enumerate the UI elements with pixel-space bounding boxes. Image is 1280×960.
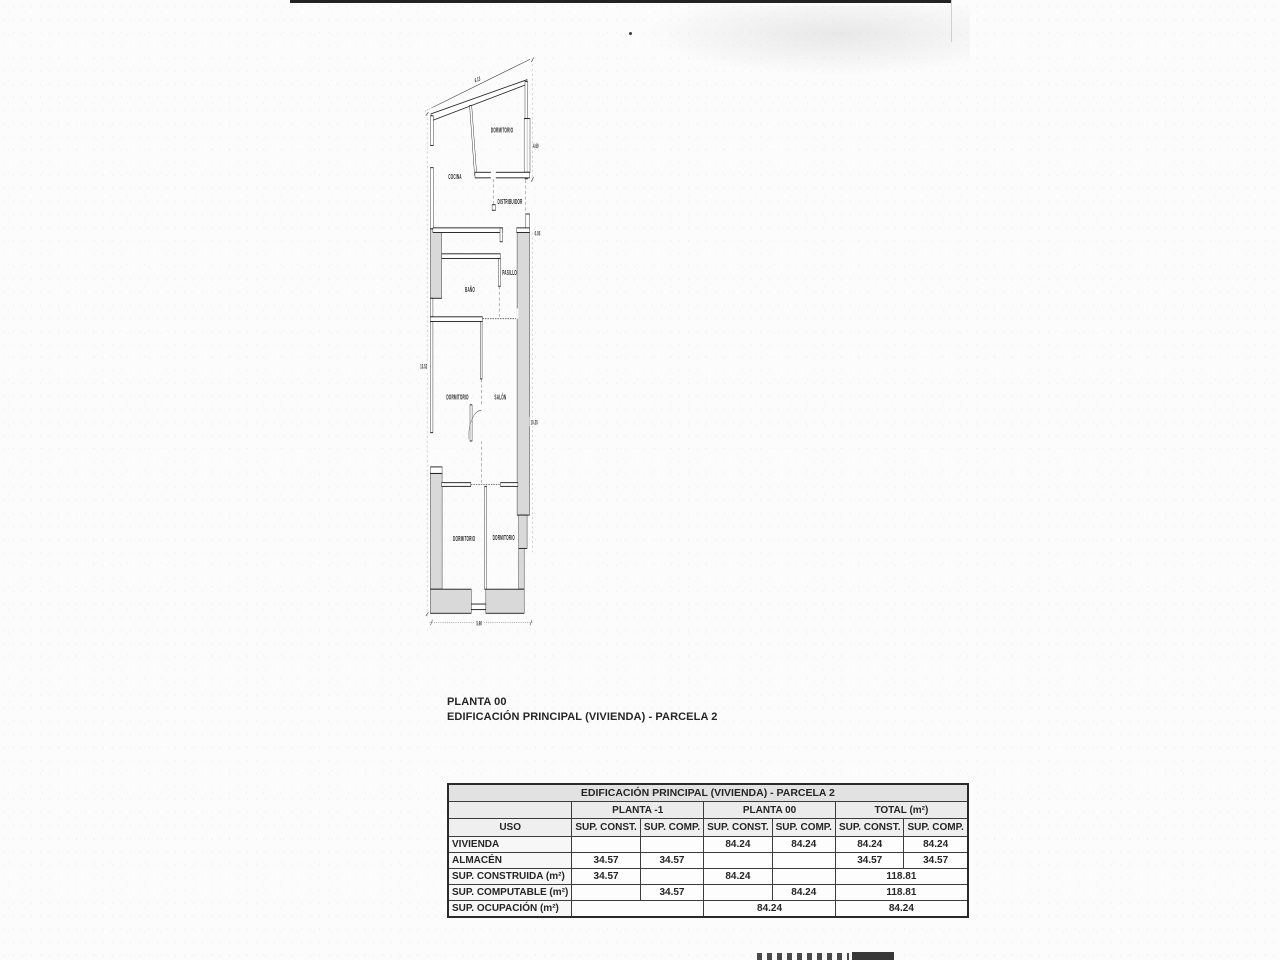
cutoff-print-artifact <box>852 952 894 960</box>
interior-walls <box>430 106 529 590</box>
table-group-row: PLANTA -1 PLANTA 00 TOTAL (m²) <box>448 802 968 819</box>
table-cell <box>640 837 703 853</box>
row-label: SUP. OCUPACIÓN (m²) <box>448 901 572 918</box>
header-sup-comp: SUP. COMP. <box>640 819 703 837</box>
table-cell <box>772 853 835 869</box>
scanned-document-page: DORMITORIO COCINA DISTRIBUIDOR PASILLO B… <box>0 0 1280 960</box>
table-cell: 34.57 <box>572 869 641 885</box>
cutoff-print-artifact <box>757 953 849 960</box>
caption-line2: EDIFICACIÓN PRINCIPAL (VIVIENDA) - PARCE… <box>447 710 717 725</box>
plan-caption: PLANTA 00 EDIFICACIÓN PRINCIPAL (VIVIEND… <box>447 695 717 725</box>
row-label: SUP. CONSTRUIDA (m²) <box>448 869 572 885</box>
table-cell: 84.24 <box>704 869 773 885</box>
dim-bottom: 5.90 <box>476 620 482 628</box>
table-title-row: EDIFICACIÓN PRINCIPAL (VIVIENDA) - PARCE… <box>448 784 968 802</box>
dim-left: 13.52 <box>420 364 427 372</box>
caption-line1: PLANTA 00 <box>447 695 717 710</box>
floor-plan-drawing: DORMITORIO COCINA DISTRIBUIDOR PASILLO B… <box>420 50 720 680</box>
table-cell: 84.24 <box>772 837 835 853</box>
header-uso: USO <box>448 819 572 837</box>
table-cell: 84.24 <box>704 837 773 853</box>
exterior-walls <box>430 80 529 610</box>
table-cell-total: 118.81 <box>835 869 967 885</box>
row-label: SUP. COMPUTABLE (m²) <box>448 885 572 901</box>
table-cell: 84.24 <box>772 885 835 901</box>
group-planta-m1: PLANTA -1 <box>572 802 704 819</box>
row-label: ALMACÉN <box>448 853 572 869</box>
table-cell: 34.57 <box>640 853 703 869</box>
room-label-dormitorio-bl: DORMITORIO <box>453 536 475 544</box>
group-total: TOTAL (m²) <box>835 802 967 819</box>
table-cell <box>704 853 773 869</box>
scan-right-edge-artifact <box>951 0 952 42</box>
group-planta-00: PLANTA 00 <box>704 802 836 819</box>
table-row-sup-construida: SUP. CONSTRUIDA (m²) 34.57 84.24 118.81 <box>448 869 968 885</box>
table-cell: 34.57 <box>904 853 968 869</box>
group-empty <box>448 802 572 819</box>
table-cell <box>572 901 704 918</box>
header-sup-comp: SUP. COMP. <box>772 819 835 837</box>
header-sup-comp: SUP. COMP. <box>904 819 968 837</box>
header-sup-const: SUP. CONST. <box>835 819 904 837</box>
wall-masses <box>430 229 529 613</box>
door-arc <box>468 405 481 441</box>
table-cell <box>640 869 703 885</box>
table-row-almacen: ALMACÉN 34.57 34.57 34.57 34.57 <box>448 853 968 869</box>
table-cell <box>572 837 641 853</box>
table-title: EDIFICACIÓN PRINCIPAL (VIVIENDA) - PARCE… <box>448 784 968 802</box>
dim-right-step: 0.05 <box>535 230 541 238</box>
table-cell: 84.24 <box>904 837 968 853</box>
row-label: VIVIENDA <box>448 837 572 853</box>
scan-edge-artifact <box>290 0 952 3</box>
table-cell: 84.24 <box>704 901 836 918</box>
header-sup-const: SUP. CONST. <box>572 819 641 837</box>
room-labels: DORMITORIO COCINA DISTRIBUIDOR PASILLO B… <box>446 127 522 543</box>
scan-speck-artifact <box>629 32 632 35</box>
table-cell-total: 84.24 <box>835 901 967 918</box>
window-right <box>524 119 530 173</box>
dim-right-upper: 4.60 <box>533 143 539 151</box>
room-label-distribuidor: DISTRIBUIDOR <box>497 199 522 207</box>
header-sup-const: SUP. CONST. <box>704 819 773 837</box>
table-subheader-row: USO SUP. CONST. SUP. COMP. SUP. CONST. S… <box>448 819 968 837</box>
table-cell: 34.57 <box>640 885 703 901</box>
surface-areas-table: EDIFICACIÓN PRINCIPAL (VIVIENDA) - PARCE… <box>447 783 969 918</box>
table-cell <box>704 885 773 901</box>
table-row-vivienda: VIVIENDA 84.24 84.24 84.24 84.24 <box>448 837 968 853</box>
room-label-salon: SALÓN <box>494 392 506 402</box>
room-label-cocina: COCINA <box>448 174 462 182</box>
table-row-sup-ocupacion: SUP. OCUPACIÓN (m²) 84.24 84.24 <box>448 901 968 918</box>
table-cell: 34.57 <box>835 853 904 869</box>
table-cell <box>572 885 641 901</box>
table-row-sup-computable: SUP. COMPUTABLE (m²) 34.57 84.24 118.81 <box>448 885 968 901</box>
table-cell: 34.57 <box>572 853 641 869</box>
table-cell <box>772 869 835 885</box>
room-label-bano: BAÑO <box>465 285 475 294</box>
room-label-dormitorio-br: DORMITORIO <box>493 535 515 543</box>
dim-right-lower: 10.25 <box>531 419 538 427</box>
dim-top: 6.13 <box>474 75 480 85</box>
table-cell: 84.24 <box>835 837 904 853</box>
room-label-dormitorio-top: DORMITORIO <box>491 127 513 135</box>
room-label-dormitorio-mid: DORMITORIO <box>446 394 468 402</box>
table-cell-total: 118.81 <box>835 885 967 901</box>
room-label-pasillo: PASILLO <box>502 270 517 278</box>
